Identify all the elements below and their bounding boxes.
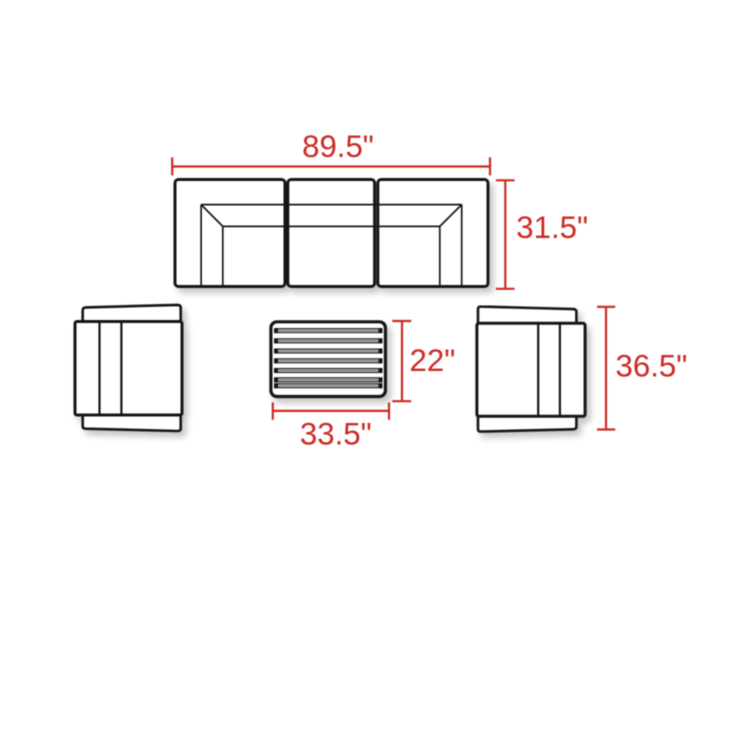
svg-text:36.5": 36.5" bbox=[616, 349, 688, 384]
svg-text:31.5": 31.5" bbox=[516, 210, 588, 245]
svg-text:22": 22" bbox=[410, 343, 456, 378]
svg-text:33.5": 33.5" bbox=[300, 417, 372, 452]
svg-text:89.5": 89.5" bbox=[302, 129, 374, 164]
